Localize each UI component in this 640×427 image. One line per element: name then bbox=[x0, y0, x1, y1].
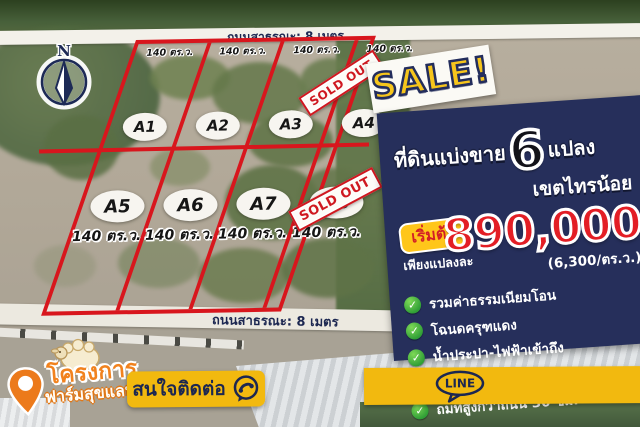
plot-area-label: 140 ตร.ว. bbox=[145, 224, 215, 247]
info-panel: ที่ดินแบ่งขาย 6 แปลง เขตไทรน้อย เริ่มต้น… bbox=[377, 95, 640, 361]
compass-north-icon: N bbox=[34, 42, 94, 110]
plot-area-label: 140 ตร.ว. bbox=[218, 222, 288, 245]
plot-id: A7 bbox=[250, 193, 277, 214]
headline-number: 6 bbox=[507, 128, 546, 174]
line-contact-bar[interactable]: LINE bbox=[364, 366, 640, 405]
phone-icon bbox=[232, 374, 260, 402]
plot-id-badge: A5 bbox=[90, 190, 145, 223]
plot-id-badge: A3 bbox=[269, 110, 313, 139]
plot-id: A4 bbox=[353, 114, 375, 132]
line-chat-icon: LINE bbox=[430, 368, 490, 404]
svg-text:N: N bbox=[57, 42, 71, 60]
plot-id-badge: A1 bbox=[122, 112, 166, 141]
plot-id-badge: A6 bbox=[163, 189, 218, 222]
check-icon: ✓ bbox=[407, 348, 425, 366]
plot-id: A6 bbox=[177, 194, 204, 215]
line-label: LINE bbox=[445, 376, 475, 390]
plot-id: A1 bbox=[133, 118, 155, 136]
check-icon: ✓ bbox=[404, 295, 422, 313]
plot-id: A5 bbox=[104, 196, 131, 217]
bottom-road-label: ถนนสาธรณะ: 8 เมตร bbox=[212, 309, 339, 332]
feature-label: โฉนดครุฑแดง bbox=[430, 313, 517, 341]
plot-id-badge: A2 bbox=[195, 111, 239, 140]
plot-id-badge: A7 bbox=[236, 187, 291, 220]
headline-prefix: ที่ดินแบ่งขาย bbox=[393, 137, 507, 177]
plot-id: A2 bbox=[206, 116, 228, 134]
plot-area-label: 140 ตร.ว. bbox=[72, 225, 142, 248]
flyer-canvas: ถนนสาธรณะ: 8 เมตร ถนนสาธรณะ: 8 เมตร 140 … bbox=[0, 0, 640, 427]
plot-area-label: 140 ตร.ว. bbox=[293, 42, 340, 58]
plot-area-label: 140 ตร.ว. bbox=[220, 44, 267, 60]
plot-id: A3 bbox=[280, 115, 302, 133]
check-icon: ✓ bbox=[405, 322, 423, 340]
map-pin-icon bbox=[4, 365, 48, 418]
headline-suffix: แปลง bbox=[547, 130, 597, 165]
contact-label: สนใจติดต่อ bbox=[132, 374, 226, 405]
feature-label: รวมค่าธรรมเนียมโอน bbox=[428, 284, 556, 315]
feature-label: น้ำประปา-ไฟฟ้าเข้าถึง bbox=[432, 336, 565, 367]
contact-button[interactable]: สนใจติดต่อ bbox=[127, 370, 265, 407]
plot-area-label: 140 ตร.ว. bbox=[146, 45, 193, 61]
price-block: เริ่มต้น เพียงแปลงละ 890,000 (6,300/ตร.ว… bbox=[398, 206, 640, 281]
